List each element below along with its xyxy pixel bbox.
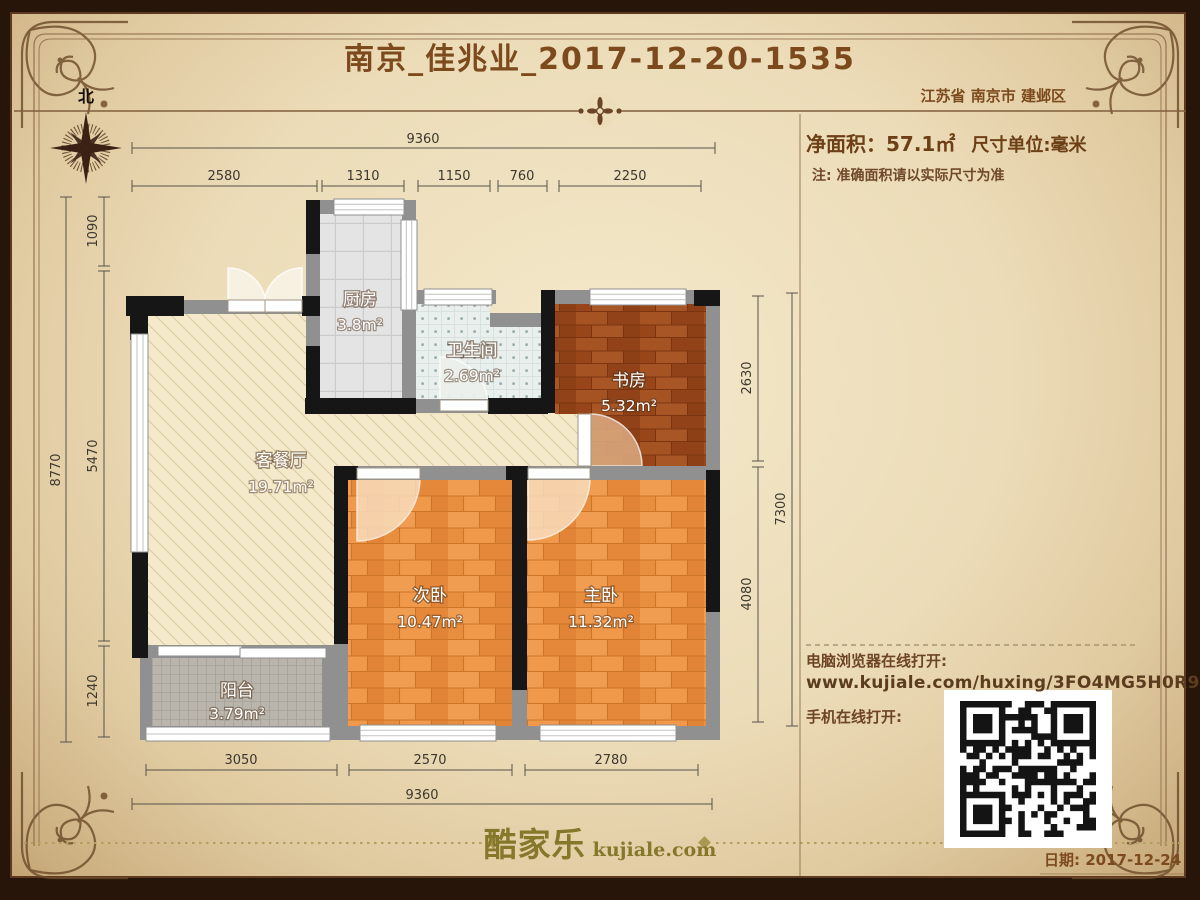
svg-text:4080: 4080	[740, 577, 755, 610]
room-kitchen-area: 3.8m²	[337, 316, 383, 334]
footer-logo: 酷家乐 kujiale.com	[0, 818, 1200, 866]
area-summary: 净面积：57.1㎡尺寸单位:毫米	[806, 128, 1087, 157]
north-label: 北	[78, 87, 94, 106]
svg-text:1150: 1150	[437, 169, 470, 184]
area-note: 注: 准确面积请以实际尺寸为准	[812, 165, 1004, 185]
svg-text:1090: 1090	[86, 214, 101, 247]
svg-text:2570: 2570	[413, 753, 446, 768]
dim-right-total: 7300	[774, 492, 789, 525]
mobile-open-label: 手机在线打开:	[806, 706, 902, 727]
svg-text:5470: 5470	[86, 439, 101, 472]
room-master-name: 主卧	[584, 586, 618, 606]
svg-text:2580: 2580	[207, 169, 240, 184]
svg-text:1310: 1310	[346, 169, 379, 184]
room-living-area: 19.71m²	[248, 478, 314, 496]
room-study-area: 5.32m²	[601, 397, 657, 415]
room-bathroom-name: 卫生间	[447, 341, 498, 361]
page-title: 南京_佳兆业_2017-12-20-1535	[0, 34, 1200, 78]
location-text: 江苏省 南京市 建邺区	[921, 85, 1066, 106]
room-living-name: 客餐厅	[256, 451, 307, 471]
room-study-name: 书房	[612, 371, 646, 391]
room-bedroom2-name: 次卧	[413, 586, 447, 606]
room-balcony-area: 3.79m²	[209, 705, 265, 723]
dim-bottom-total: 9360	[405, 788, 438, 803]
svg-text:2780: 2780	[594, 753, 627, 768]
svg-text:2250: 2250	[613, 169, 646, 184]
room-master-area: 11.32m²	[568, 613, 634, 631]
room-bathroom-area: 2.69m²	[444, 367, 500, 385]
net-area-value: 净面积：57.1㎡	[806, 132, 955, 156]
room-bedroom2-area: 10.47m²	[397, 613, 463, 631]
logo-cn: 酷家乐	[484, 818, 586, 866]
floorplan: 厨房 3.8m² 卫生间 2.69m² 书房 5.32m² 客餐厅 19.71m…	[49, 132, 798, 810]
svg-text:2630: 2630	[740, 361, 755, 394]
unit-label: 尺寸单位:毫米	[971, 135, 1086, 156]
svg-text:760: 760	[510, 169, 535, 184]
pc-open-label: 电脑浏览器在线打开:	[806, 650, 947, 671]
share-url: www.kujiale.com/huxing/3FO4MG5H0R9C	[806, 673, 1200, 693]
dim-top-total: 9360	[406, 132, 439, 147]
dim-left-total: 8770	[49, 453, 64, 486]
room-balcony-name: 阳台	[220, 681, 254, 701]
logo-en: kujiale.com	[593, 839, 717, 861]
room-kitchen-name: 厨房	[343, 290, 377, 310]
svg-text:3050: 3050	[224, 753, 257, 768]
floorplan-sheet: 北	[0, 0, 1200, 900]
svg-text:1240: 1240	[86, 674, 101, 707]
north-compass-icon: 北	[50, 87, 122, 184]
